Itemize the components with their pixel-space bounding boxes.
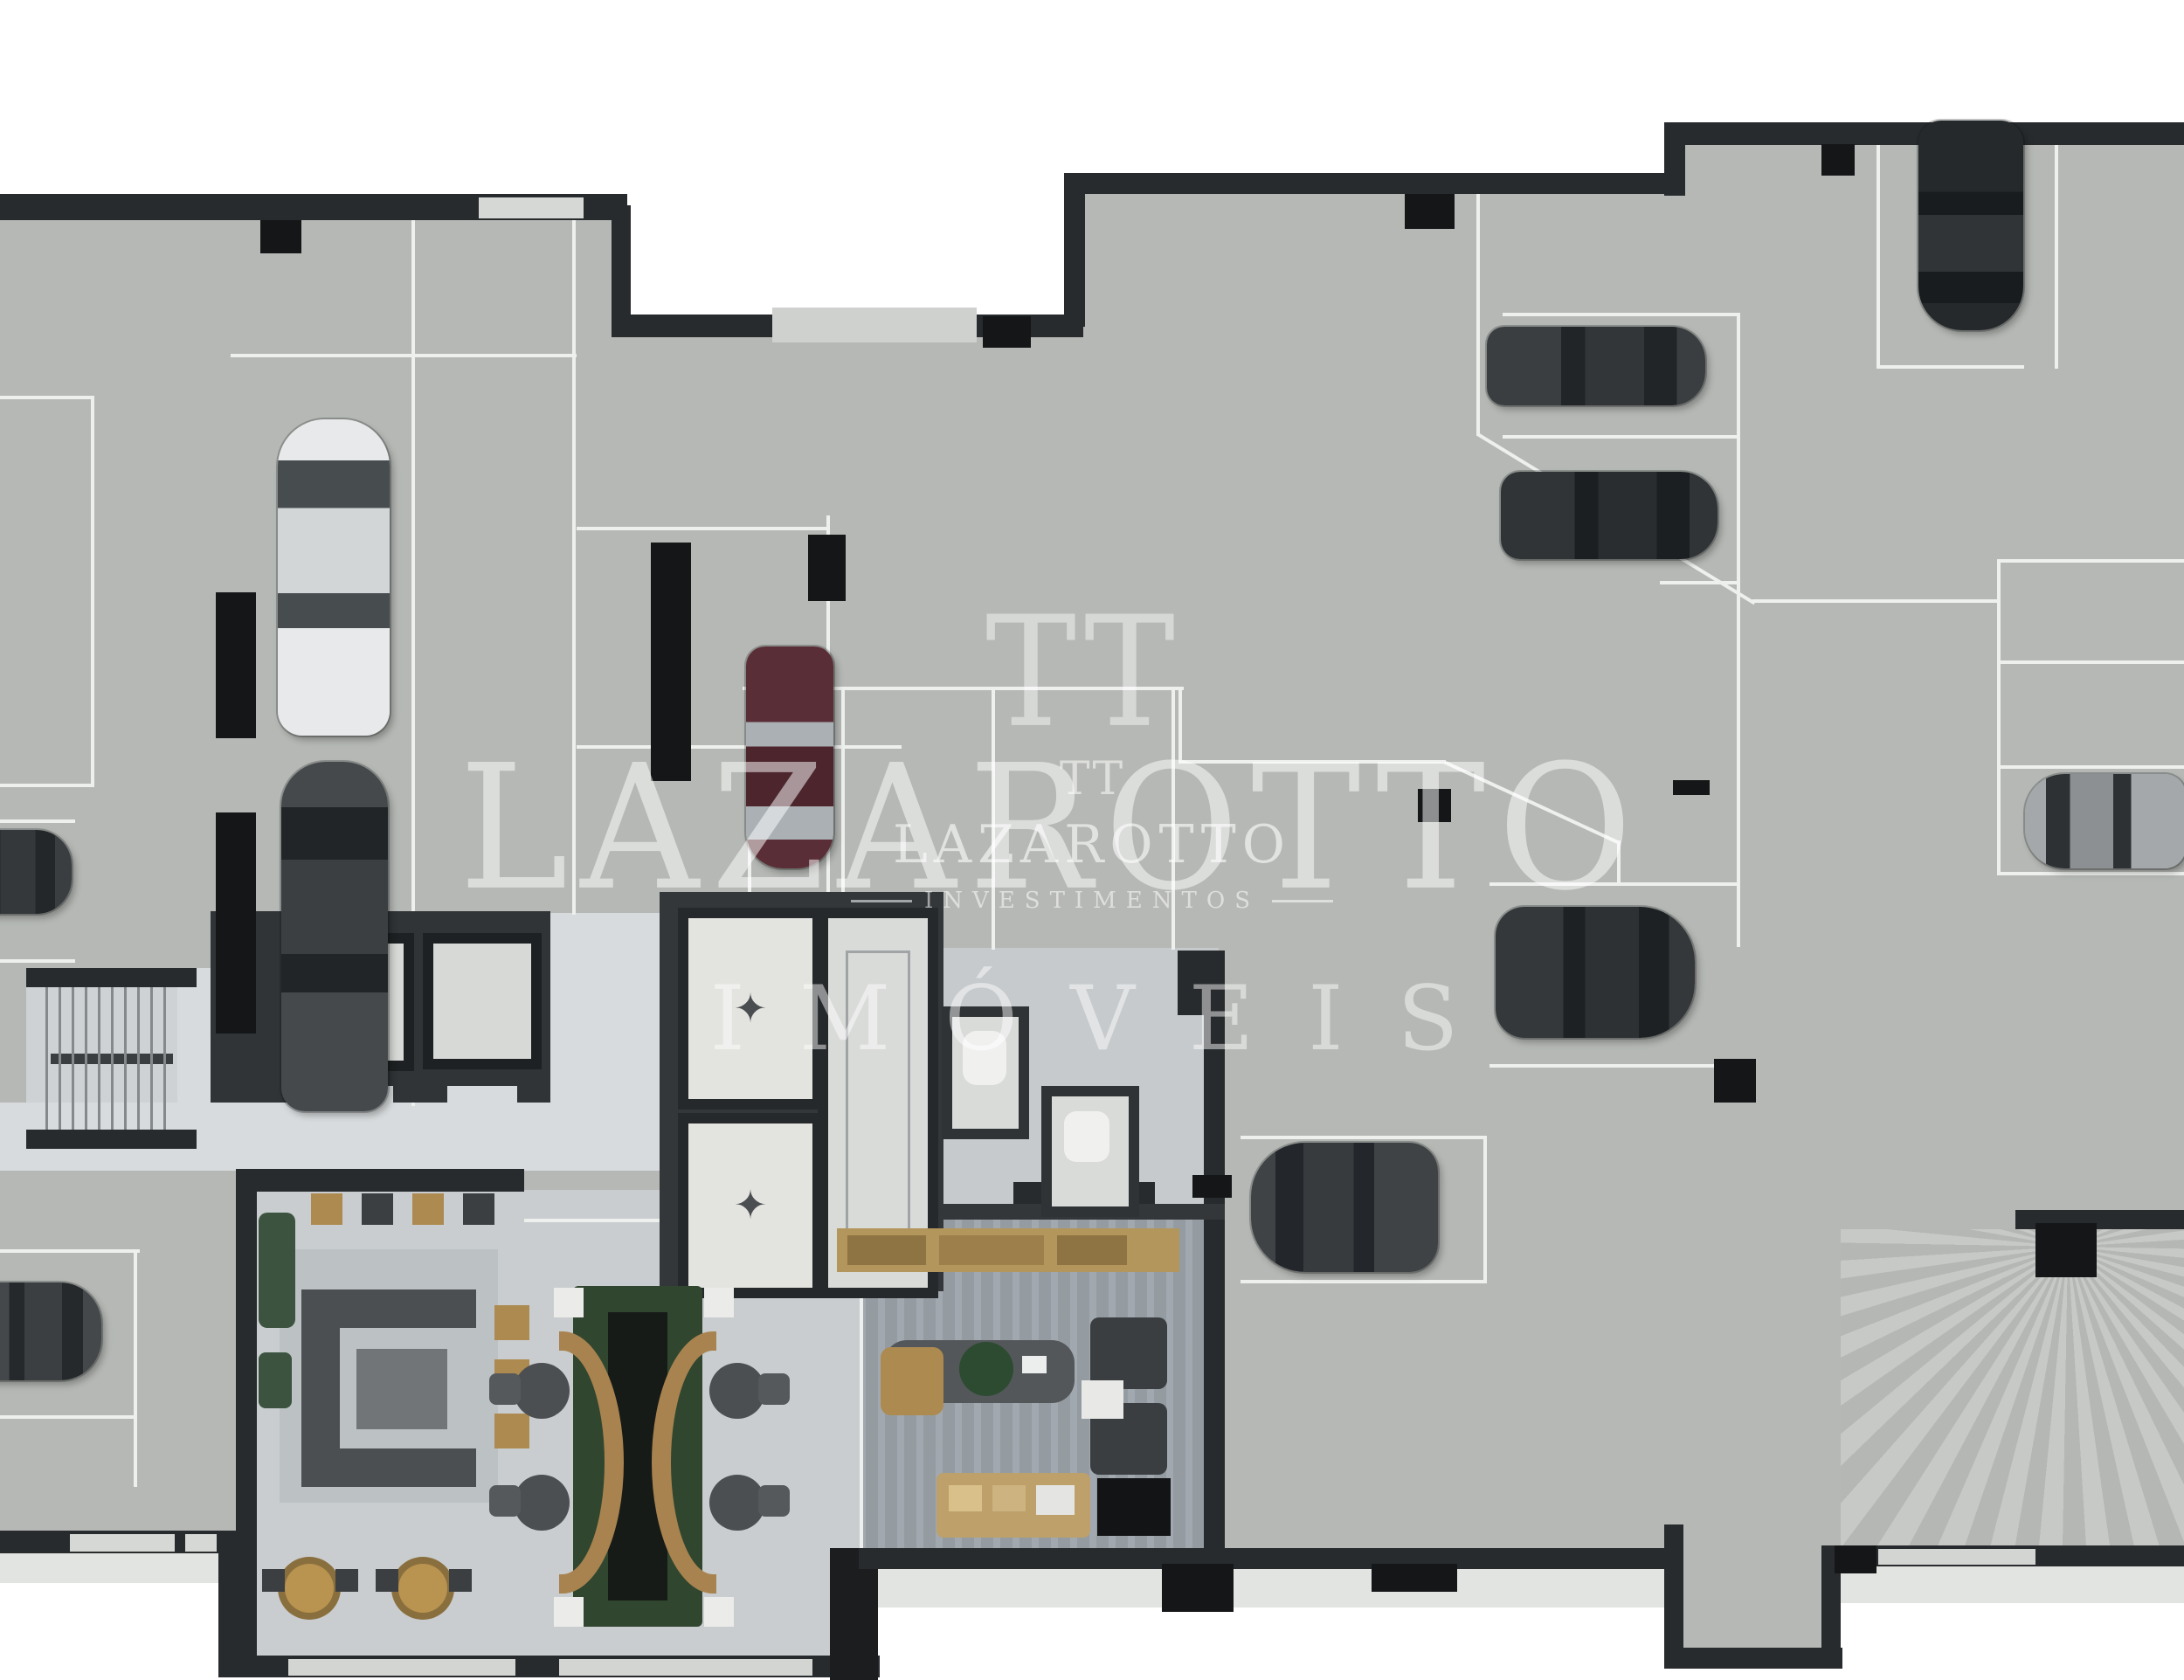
parking-line (1997, 660, 2184, 664)
booth-chair (489, 1373, 521, 1405)
parking-line (992, 690, 995, 950)
wall (236, 1169, 257, 1676)
side-table (704, 1288, 734, 1317)
wall-stairs (26, 1130, 197, 1149)
armchair (881, 1347, 943, 1415)
parking-line (1997, 559, 2001, 875)
sidewalk (0, 1553, 218, 1583)
screenshot-root: { "watermark":{ "monogram":"TT", "brand"… (0, 0, 2184, 1680)
pillar (1192, 1175, 1232, 1198)
parking-line (0, 396, 94, 399)
stair-tread (98, 987, 100, 1130)
parking-line (1180, 760, 1446, 764)
parking-line (91, 396, 94, 787)
dining-chair (1090, 1317, 1167, 1389)
pillar (1673, 780, 1710, 795)
parking-line (577, 745, 902, 749)
side-table (704, 1597, 734, 1627)
pillar (1835, 1545, 1876, 1573)
stair-tread (137, 987, 140, 1130)
lounge-chair (362, 1193, 393, 1225)
parking-line (1503, 435, 1738, 439)
booth-chair (489, 1485, 521, 1517)
wall (1064, 183, 1085, 327)
stair-tread (111, 987, 114, 1130)
parking-line (1483, 1136, 1487, 1283)
booth-chair (758, 1485, 790, 1517)
wall (1664, 1648, 1842, 1669)
car-upper-right-2 (1501, 472, 1717, 559)
door-sill (559, 1659, 812, 1676)
stair-tread (124, 987, 127, 1130)
pillar (1714, 1059, 1756, 1103)
parking-line (572, 220, 576, 915)
corridor-floor (550, 913, 660, 1171)
lounge-chair (494, 1414, 529, 1448)
parking-line (841, 690, 845, 894)
ramp-fan (1841, 1229, 2184, 1568)
parking-line (1489, 1064, 1738, 1068)
wall (1204, 951, 1225, 1567)
bistro-table-top (285, 1564, 334, 1613)
car-upper-right-1 (1487, 327, 1705, 405)
bistro-chair (335, 1569, 358, 1592)
bistro-chair (262, 1569, 285, 1592)
stair-tread (150, 987, 153, 1130)
parking-line (1876, 365, 2024, 369)
toilet (963, 1031, 1006, 1085)
pillar (651, 543, 691, 781)
pillar (1162, 1564, 1234, 1612)
parking-line (1489, 882, 1738, 886)
parking-line (577, 527, 830, 530)
stair-tread (85, 987, 87, 1130)
parking-line (134, 1249, 137, 1487)
entry-mat (1097, 1478, 1171, 1536)
sideboard-detail (847, 1235, 926, 1265)
bench-pillow (949, 1485, 982, 1511)
pillar (1405, 194, 1455, 229)
parking-line (1503, 313, 1738, 316)
pillar (260, 220, 301, 253)
pillar (216, 592, 256, 738)
pillar-ramp (2035, 1223, 2097, 1277)
sidewalk (1841, 1566, 2184, 1603)
wall (859, 1548, 1683, 1569)
floor-motif: ✦ (724, 982, 777, 1034)
car-mid-right (1496, 907, 1695, 1038)
parking-line (2055, 144, 2058, 369)
lounge-chair (463, 1193, 494, 1225)
bistro-chair (449, 1569, 472, 1592)
lounge-chair (311, 1193, 342, 1225)
garage-door-sill (772, 308, 977, 342)
door-sill (1878, 1549, 2035, 1565)
parking-line (231, 354, 577, 357)
elevator-cab (433, 944, 531, 1059)
door-sill (479, 197, 584, 218)
booth-table (514, 1363, 570, 1419)
floor-motif: ✦ (724, 1179, 777, 1231)
parking-line (0, 959, 75, 963)
parking-line (1476, 194, 1480, 436)
pillar (808, 535, 846, 601)
pillar (1372, 1564, 1457, 1592)
car-suv-top-right (1918, 121, 2023, 330)
car-white-sedan (278, 419, 390, 736)
stair-tread (59, 987, 61, 1130)
bench-pillow (992, 1485, 1026, 1511)
parking-line (1241, 1280, 1487, 1283)
door-sill (288, 1659, 515, 1676)
bench-pillow (1036, 1485, 1075, 1515)
wall-stairs (26, 968, 197, 987)
pillar (1821, 144, 1855, 176)
parking-line (0, 1249, 140, 1253)
car-dark-sedan (281, 762, 388, 1111)
parking-line (0, 1415, 137, 1419)
stair-tread (72, 987, 74, 1130)
sideboard-detail (1057, 1235, 1127, 1265)
door-sill (185, 1534, 217, 1552)
wall (236, 1169, 524, 1192)
parking-line (0, 819, 75, 823)
planter-box (259, 1213, 295, 1328)
stair-tread (45, 987, 48, 1130)
car-edge-lower (0, 1282, 101, 1380)
garage-floor-plan: ✦✦ (0, 0, 2184, 1680)
car-maroon (746, 646, 833, 868)
side-table (554, 1288, 584, 1317)
stair-tread (163, 987, 166, 1130)
planter-box (259, 1352, 292, 1408)
bistro-table-top (398, 1564, 447, 1613)
car-edge-upper (0, 830, 72, 914)
lounge-chair (412, 1193, 444, 1225)
wall (1064, 173, 1670, 194)
sidewalk (878, 1569, 1664, 1607)
parking-line (1241, 1136, 1487, 1139)
booth-table (709, 1363, 765, 1419)
sideboard-detail (939, 1235, 1044, 1265)
car-kitchen-bay (1251, 1143, 1438, 1272)
parking-line (1178, 688, 1182, 764)
parking-line (1737, 313, 1740, 947)
pillar (983, 316, 1031, 348)
parking-line (0, 784, 94, 787)
dining-table (1082, 1380, 1123, 1419)
coffee-table (356, 1349, 447, 1429)
parking-line (1997, 872, 2184, 875)
bistro-chair (376, 1569, 398, 1592)
toilet (1064, 1111, 1109, 1162)
parking-line (1617, 840, 1621, 886)
parking-line (1171, 690, 1175, 950)
pillar (1418, 789, 1451, 822)
booth-chair (758, 1373, 790, 1405)
booth-table (514, 1475, 570, 1531)
lounge-chair (494, 1305, 529, 1340)
island-plant (959, 1342, 1013, 1396)
wall (612, 205, 631, 328)
elevator-door-gap (447, 1086, 517, 1103)
car-sports-right (2025, 774, 2184, 868)
side-table (554, 1597, 584, 1627)
parking-line (1660, 581, 1738, 584)
parking-line (1752, 599, 2001, 603)
door-sill (70, 1534, 175, 1552)
service-room-inner (846, 951, 910, 1255)
parking-line (1997, 765, 2184, 769)
sofa-u (301, 1448, 476, 1487)
booth-table (709, 1475, 765, 1531)
island-dish (1022, 1356, 1047, 1373)
parking-line (1876, 144, 1880, 369)
pillar (216, 812, 256, 1034)
parking-line (1997, 559, 2184, 563)
